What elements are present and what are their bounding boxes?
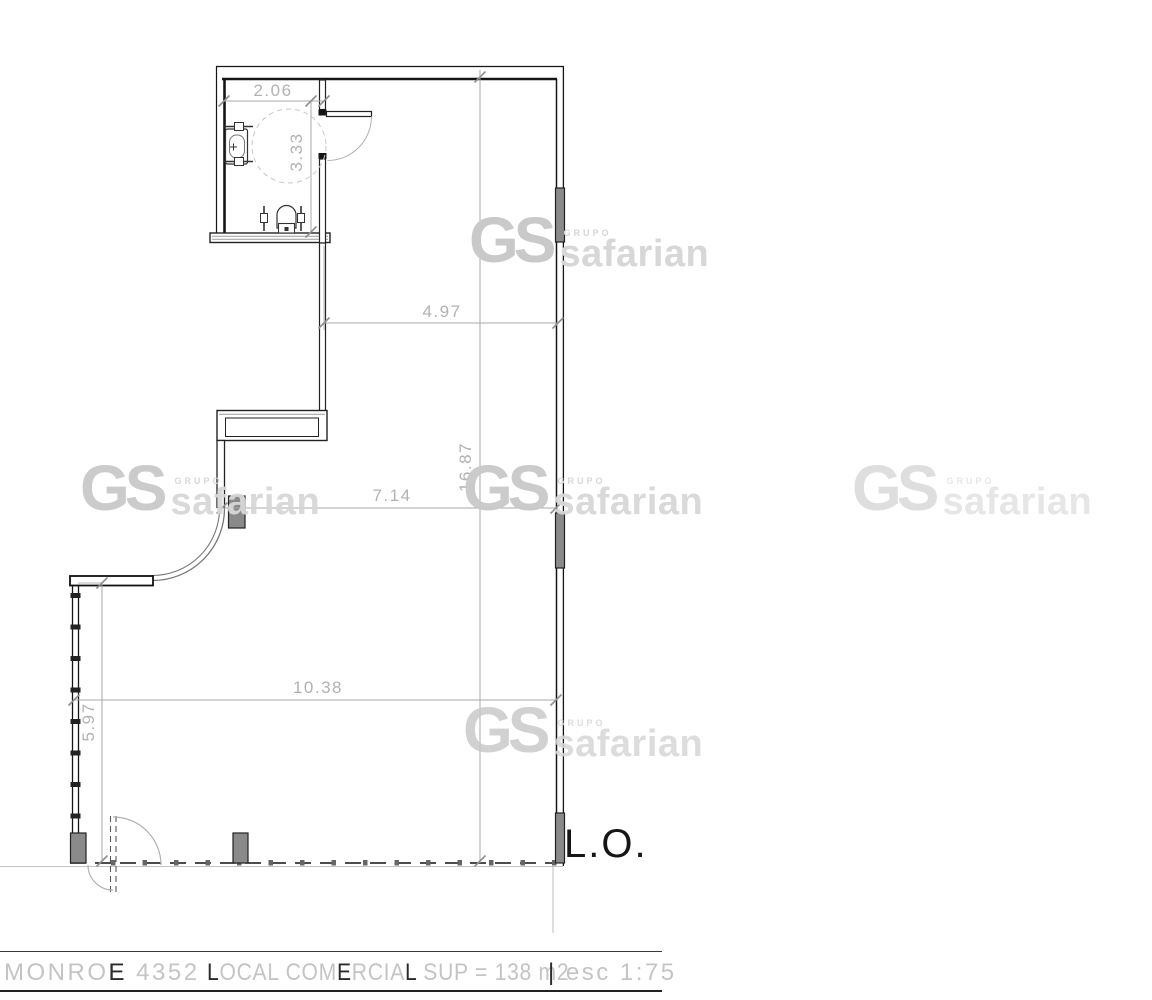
sink-grab-bar-bottom-handle bbox=[235, 158, 244, 166]
entrance-door-swing-upper bbox=[113, 817, 161, 865]
tick-mark bbox=[300, 860, 305, 866]
title-segment-dark: E bbox=[337, 959, 352, 986]
dimension-bathroom-width: 2.06 bbox=[247, 82, 299, 100]
title-segment: RCIA bbox=[352, 959, 405, 986]
tick-mark bbox=[269, 860, 274, 866]
tick-mark bbox=[489, 860, 494, 866]
title-description: LOCAL COMERCIAL SUP = 138 m2 bbox=[207, 958, 569, 988]
dimension-upper-width: 4.97 bbox=[416, 303, 468, 321]
perimeter-walls bbox=[0, 66, 564, 933]
title-segment: 4352 bbox=[127, 959, 200, 986]
toilet-grab-bar-left-handle bbox=[261, 214, 268, 223]
tick-mark bbox=[332, 860, 337, 866]
curved-wall-outer bbox=[153, 509, 225, 581]
left-wall-below-step bbox=[217, 441, 225, 508]
tick-mark bbox=[71, 751, 81, 756]
dimension-lower-width: 10.38 bbox=[289, 679, 347, 697]
tick-mark bbox=[71, 656, 81, 661]
column-right-mid bbox=[556, 513, 565, 568]
bathroom-bottom-wall bbox=[210, 233, 330, 243]
sink-grab-bar-top-handle bbox=[235, 123, 244, 131]
bathroom-door-leaf bbox=[327, 112, 372, 117]
property-line-label: L.O. bbox=[564, 822, 648, 867]
dimension-tick-marks bbox=[69, 72, 564, 867]
title-segment-dark: L bbox=[405, 959, 417, 986]
dimension-mid-width: 7.14 bbox=[366, 487, 418, 505]
dimension-left-front-height: 5.97 bbox=[80, 694, 98, 750]
bathroom-right-wall-lower bbox=[320, 159, 326, 243]
column-front-mid bbox=[233, 833, 248, 863]
title-segment: OCAL COM bbox=[219, 959, 337, 986]
tick-mark bbox=[71, 593, 81, 598]
column-front-left bbox=[71, 833, 87, 863]
dimension-lines bbox=[69, 70, 564, 867]
structural-columns bbox=[71, 188, 565, 863]
title-block-bottom-rule bbox=[0, 990, 662, 992]
column-right-top bbox=[556, 188, 565, 242]
toilet-grab-bar-right-handle bbox=[298, 214, 305, 223]
tick-mark bbox=[174, 860, 179, 866]
title-segment: SUP = 138 m2 bbox=[417, 959, 570, 986]
title-block-top-rule bbox=[0, 951, 662, 952]
title-segment: MONRO bbox=[4, 959, 109, 986]
floor-plan-page: 2.06 3.33 4.97 16.87 7.14 10.38 5.97 L.O… bbox=[0, 0, 1152, 1000]
title-scale: | esc 1:75 bbox=[548, 958, 677, 988]
tick-mark bbox=[206, 860, 211, 866]
toilet-flush-dot bbox=[285, 227, 289, 231]
tick-mark bbox=[71, 814, 81, 819]
entrance-door-swing-lower bbox=[88, 865, 113, 890]
front-line-ticks bbox=[111, 860, 557, 866]
tick-mark bbox=[458, 860, 463, 866]
curved-wall-inner bbox=[153, 509, 220, 576]
title-segment: esc 1:75 bbox=[557, 959, 677, 986]
tick-mark bbox=[143, 860, 148, 866]
tick-mark bbox=[111, 860, 116, 866]
bathroom-door-stop-top bbox=[319, 110, 327, 116]
tick-mark bbox=[521, 860, 526, 866]
curve-base-wall bbox=[70, 576, 153, 586]
bathroom-door-stop-bottom bbox=[319, 153, 327, 159]
step-wall-inner bbox=[226, 418, 319, 437]
title-address: MONROE 4352 bbox=[4, 958, 200, 988]
dimension-bathroom-height: 3.33 bbox=[288, 124, 306, 180]
dimension-total-depth: 16.87 bbox=[457, 437, 475, 497]
tick-mark bbox=[395, 860, 400, 866]
title-segment-dark: E bbox=[109, 959, 128, 986]
bathroom-door-swing bbox=[328, 117, 372, 161]
tick-mark bbox=[71, 625, 81, 630]
tick-mark bbox=[426, 860, 431, 866]
column-mid-left bbox=[229, 496, 246, 528]
title-segment-dark: | bbox=[548, 959, 557, 986]
tick-mark bbox=[71, 688, 81, 693]
tick-mark bbox=[363, 860, 368, 866]
tick-mark bbox=[71, 782, 81, 787]
title-segment-dark: L bbox=[207, 959, 219, 986]
